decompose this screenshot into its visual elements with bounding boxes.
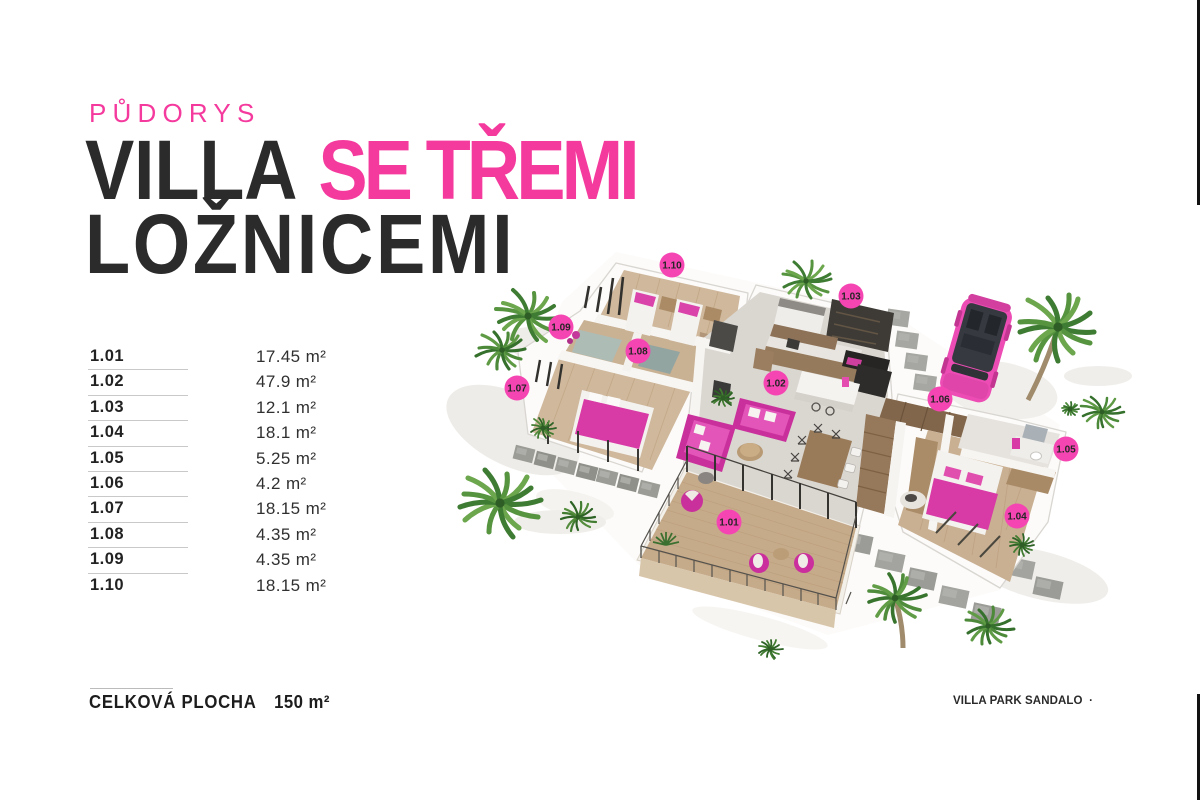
svg-text:1.09: 1.09	[551, 323, 571, 334]
svg-text:1.06: 1.06	[930, 395, 950, 406]
svg-text:1.05: 1.05	[1056, 445, 1076, 456]
svg-text:1.08: 1.08	[628, 347, 648, 358]
svg-text:1.10: 1.10	[662, 261, 682, 272]
svg-text:1.01: 1.01	[719, 518, 739, 529]
svg-text:1.03: 1.03	[841, 292, 861, 303]
svg-text:1.04: 1.04	[1007, 512, 1027, 523]
svg-text:1.02: 1.02	[766, 379, 786, 390]
svg-text:1.07: 1.07	[507, 384, 527, 395]
